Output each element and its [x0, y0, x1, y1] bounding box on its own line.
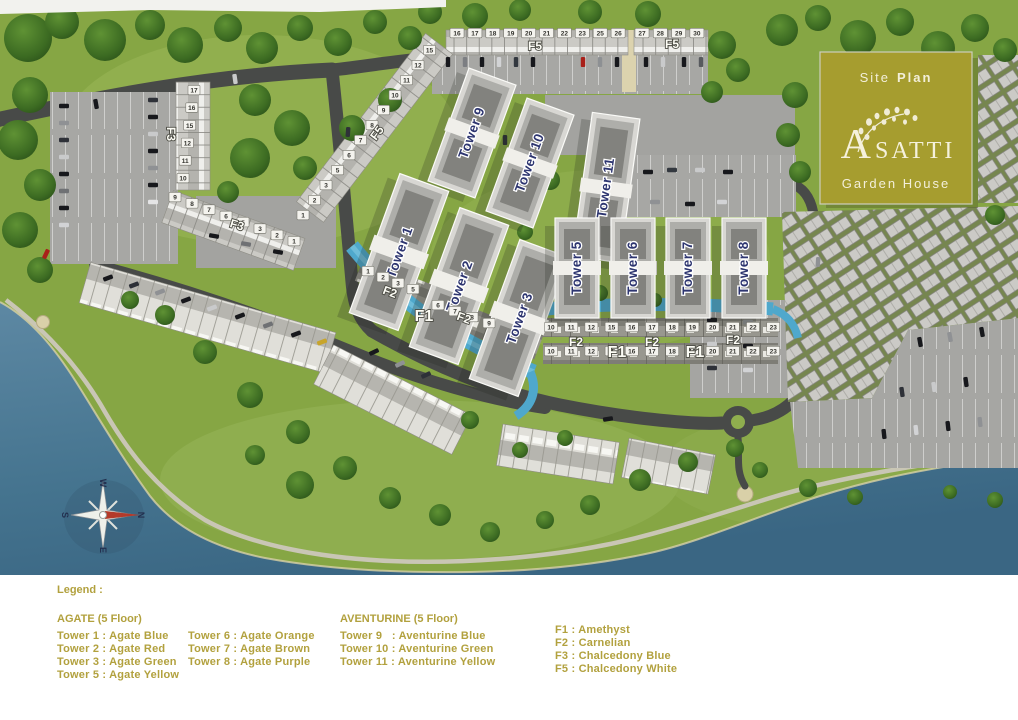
unit-number: 9: [173, 195, 177, 202]
unit-number: 6: [436, 303, 440, 310]
unit-number: 15: [186, 123, 194, 130]
tower-6: Tower 6: [601, 218, 657, 326]
unit-number: 3: [324, 183, 328, 190]
unit-number: 28: [657, 31, 665, 38]
legend-line-tower9: Tower 9 : Aventurine Blue: [340, 630, 486, 642]
legend-title: Legend :: [57, 584, 103, 596]
f1-label-west: F1: [415, 308, 434, 325]
unit-number: 17: [648, 325, 656, 332]
unit-number: 3: [258, 226, 262, 233]
unit-number: 12: [588, 349, 596, 356]
legend-line-tower8: Tower 8 : Agate Purple: [188, 656, 310, 668]
unit-number: 20: [709, 325, 717, 332]
f5-label-north-east: F5: [665, 37, 679, 51]
compass-west: W: [98, 479, 108, 488]
unit-number: 20: [709, 349, 717, 356]
f2-label-east-2: F2: [645, 335, 659, 349]
aventurine-heading: AVENTURINE (5 Floor): [340, 613, 458, 625]
tower-6-label: Tower 6: [625, 241, 640, 295]
unit-number: 27: [638, 31, 646, 38]
legend-line-tower10: Tower 10 : Aventurine Green: [340, 643, 494, 655]
unit-number: 22: [561, 31, 569, 38]
legend-line-tower6: Tower 6 : Agate Orange: [188, 630, 315, 642]
unit-number: 7: [359, 138, 363, 145]
site-plan-title: SitePlan: [860, 70, 933, 85]
unit-number: 9: [487, 321, 491, 328]
unit-number: 15: [426, 48, 434, 55]
unit-number: 10: [547, 349, 555, 356]
unit-number: 2: [313, 198, 317, 205]
unit-number: 16: [628, 325, 636, 332]
logo-panel: SitePlan ASATTI Garden House: [820, 52, 978, 208]
unit-number: 22: [749, 325, 757, 332]
unit-number: 18: [669, 325, 677, 332]
f5-label-north-west: F5: [528, 39, 542, 53]
unit-number: 16: [188, 105, 196, 112]
unit-number: 1: [301, 213, 305, 220]
unit-number: 30: [693, 31, 701, 38]
unit-number: 16: [453, 31, 461, 38]
unit-number: 23: [770, 349, 778, 356]
unit-number: 12: [184, 140, 192, 147]
agate-heading: AGATE (5 Floor): [57, 613, 142, 625]
legend-line-tower5: Tower 5 : Agate Yellow: [57, 669, 179, 681]
unit-number: 26: [614, 31, 622, 38]
unit-number: 23: [770, 325, 778, 332]
unit-number: 21: [543, 31, 551, 38]
legend-panel: Legend : AGATE (5 Floor) Tower 1 : Agate…: [0, 575, 1018, 720]
unit-number: 19: [507, 31, 515, 38]
legend-line-f3: F3 : Chalcedony Blue: [555, 650, 671, 662]
tower-7: Tower 7: [656, 218, 712, 326]
tower-7-label: Tower 7: [680, 241, 695, 295]
unit-number: 12: [414, 63, 422, 70]
legend-line-tower1: Tower 1 : Agate Blue: [57, 630, 169, 642]
compass-north: N: [136, 512, 146, 519]
unit-number: 11: [403, 78, 410, 85]
brand-subtitle: Garden House: [842, 176, 951, 191]
unit-number: 7: [207, 207, 211, 214]
legend-line-tower7: Tower 7 : Agate Brown: [188, 643, 310, 655]
unit-number: 2: [275, 232, 279, 239]
unit-number: 21: [729, 349, 737, 356]
legend-line-tower2: Tower 2 : Agate Red: [57, 643, 165, 655]
f2-label-east-1: F2: [569, 335, 583, 349]
unit-number: 12: [588, 325, 596, 332]
compass-south: S: [60, 512, 70, 518]
legend-line-f1: F1 : Amethyst: [555, 624, 630, 636]
site-plan-page: Tower 9 Tower 10 Tower 11 Tower 1: [0, 0, 1018, 720]
unit-number: 6: [347, 153, 351, 160]
unit-number: 10: [391, 93, 399, 100]
plaza-circle: [37, 316, 50, 329]
unit-number: 21: [729, 325, 737, 332]
unit-number: 1: [366, 269, 370, 276]
legend-line-tower11: Tower 11 : Aventurine Yellow: [340, 656, 495, 668]
unit-number: 11: [568, 325, 575, 332]
tower-5: Tower 5: [545, 218, 601, 326]
unit-number: 1: [292, 239, 296, 246]
compass-east: E: [98, 547, 108, 553]
unit-number: 25: [597, 31, 605, 38]
unit-number: 10: [179, 176, 187, 183]
f1-label-east-1: F1: [608, 344, 627, 361]
unit-number: 11: [182, 158, 189, 165]
unit-number: 5: [411, 287, 415, 294]
unit-number: 16: [628, 349, 636, 356]
unit-number: 18: [489, 31, 497, 38]
legend-line-f5: F5 : Chalcedony White: [555, 663, 677, 675]
roundabout: [722, 406, 754, 438]
unit-number: 8: [190, 201, 194, 208]
legend-line-tower3: Tower 3 : Agate Green: [57, 656, 177, 668]
unit-number: 5: [336, 168, 340, 175]
tower-8: Tower 8: [712, 218, 768, 326]
tower-8-label: Tower 8: [736, 241, 751, 295]
unit-number: 17: [471, 31, 479, 38]
f3-label-vertical: F3: [164, 127, 178, 141]
unit-number: 20: [525, 31, 533, 38]
f2-label-east-3: F2: [726, 333, 740, 347]
unit-number: 18: [669, 349, 677, 356]
unit-number: 19: [689, 325, 697, 332]
unit-number: 22: [749, 349, 757, 356]
f1-label-east-2: F1: [686, 344, 705, 361]
site-plan-map: Tower 9 Tower 10 Tower 11 Tower 1: [0, 0, 1018, 575]
unit-number: 23: [579, 31, 587, 38]
unit-number: 2: [381, 275, 385, 282]
legend-line-f2: F2 : Carnelian: [555, 637, 631, 649]
tower-5-label: Tower 5: [569, 241, 584, 295]
unit-number: 7: [453, 309, 457, 316]
unit-number: 6: [224, 214, 228, 221]
unit-number: 10: [547, 325, 555, 332]
unit-number: 11: [568, 349, 575, 356]
unit-number: 17: [648, 349, 656, 356]
unit-number: 9: [382, 108, 386, 115]
unit-number: 15: [608, 325, 616, 332]
unit-number: 17: [190, 88, 198, 95]
